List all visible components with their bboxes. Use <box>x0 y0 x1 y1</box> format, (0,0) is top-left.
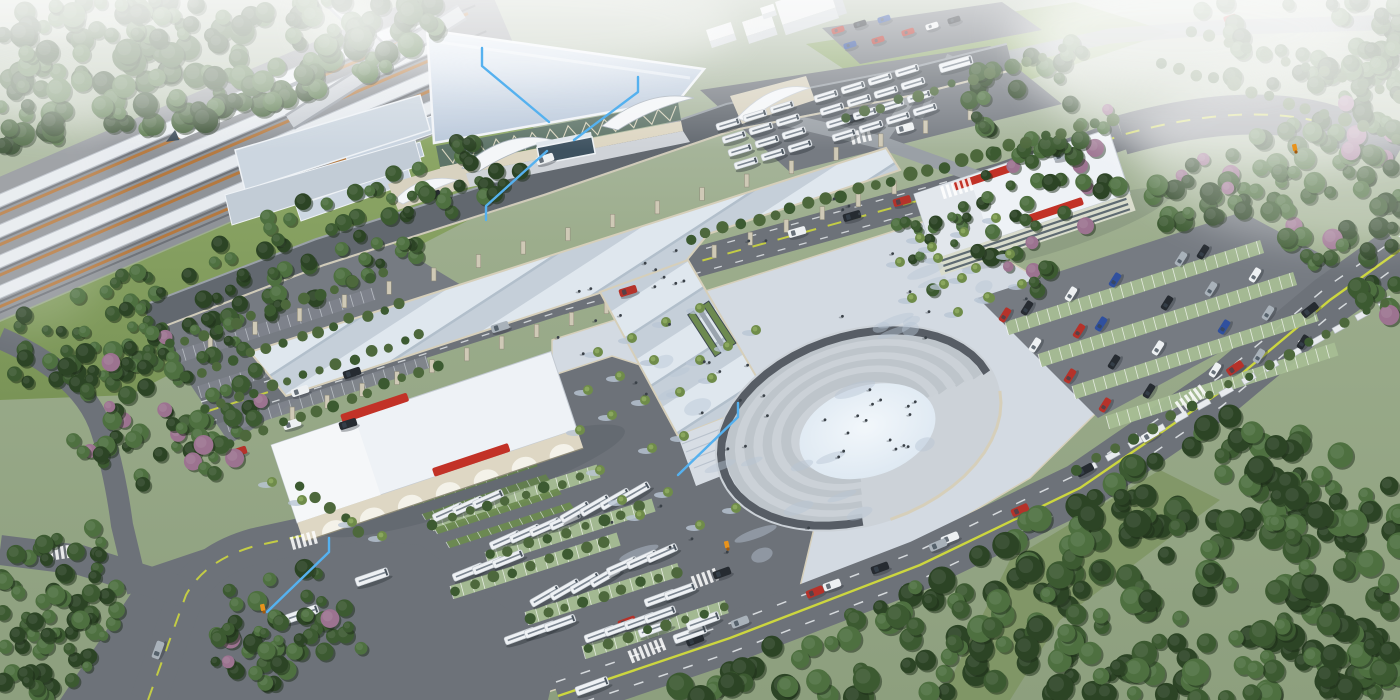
tree-highlight <box>157 288 163 294</box>
hedge-bush <box>871 180 881 190</box>
person <box>891 252 894 255</box>
tree-highlight <box>350 210 359 219</box>
tree-highlight <box>848 612 859 623</box>
tree-highlight <box>1272 490 1281 499</box>
hedge-bush <box>671 567 682 578</box>
hedge-bush <box>312 327 324 339</box>
tree-highlight <box>387 194 393 200</box>
tree-highlight <box>513 164 522 173</box>
tree-highlight <box>65 644 71 650</box>
tree-highlight <box>96 538 102 544</box>
tree-highlight <box>90 572 97 579</box>
hedge-bush <box>735 219 746 230</box>
hedge-bush <box>330 285 339 294</box>
person <box>746 364 749 367</box>
hedge-bush <box>315 366 323 374</box>
hedge-bush <box>267 379 279 391</box>
tree-highlight <box>245 635 256 646</box>
tree-highlight <box>1372 661 1387 676</box>
tree-highlight <box>779 678 791 690</box>
tree-highlight <box>249 593 260 604</box>
hedge-bush <box>279 417 288 426</box>
tree-highlight <box>1184 439 1195 450</box>
hedge-bush <box>365 273 376 284</box>
tree-highlight <box>138 361 146 369</box>
hedge-bush <box>581 542 593 554</box>
tree-highlight <box>479 179 488 188</box>
tree-highlight <box>274 616 283 625</box>
tree-highlight <box>23 677 29 683</box>
tree-highlight <box>211 658 217 664</box>
tree-highlight <box>213 237 222 246</box>
tree-highlight <box>1094 610 1103 619</box>
tree-highlight <box>233 297 242 306</box>
tree-highlight <box>478 190 487 199</box>
hedge-bush <box>700 228 711 239</box>
hedge-bush <box>343 313 354 324</box>
tree-highlight <box>221 385 228 392</box>
tree-highlight <box>1230 632 1239 641</box>
tree-highlight <box>1330 445 1344 459</box>
tree-highlight <box>942 650 951 659</box>
plaza-tree-highlight <box>753 327 758 332</box>
person <box>841 208 844 211</box>
tree-highlight <box>916 252 921 257</box>
tree-highlight <box>1123 589 1138 604</box>
tree-highlight <box>1077 176 1086 185</box>
person <box>848 205 851 208</box>
person <box>842 450 845 453</box>
hedge-bush <box>753 214 765 226</box>
tree-highlight <box>273 234 280 241</box>
person <box>668 323 671 326</box>
tree-highlight <box>803 637 815 649</box>
tree-highlight <box>225 337 231 343</box>
tree-highlight <box>1199 635 1210 646</box>
tree-highlight <box>455 181 462 188</box>
plaza-tree-highlight <box>725 343 730 348</box>
tree-highlight <box>986 672 999 685</box>
tree-highlight <box>983 192 990 199</box>
plaza-tree-highlight <box>677 389 682 394</box>
plaza-tree-highlight <box>597 467 602 472</box>
tree-highlight <box>19 668 28 677</box>
plaza-tree-highlight <box>649 445 654 450</box>
tree-highlight <box>1359 553 1374 568</box>
hedge-bush <box>1380 299 1389 308</box>
tree-highlight <box>202 314 209 321</box>
tree-highlight <box>413 163 421 171</box>
tree-highlight <box>81 385 89 393</box>
plaza-tree-highlight <box>709 375 714 380</box>
person <box>841 315 844 318</box>
hedge-bush <box>562 549 573 560</box>
tree-highlight <box>1007 181 1013 187</box>
person <box>903 444 906 447</box>
tree-highlight <box>1159 548 1168 557</box>
hedge-bush <box>543 534 552 543</box>
tree-highlight <box>721 675 735 689</box>
tree-highlight <box>37 537 47 547</box>
person <box>744 445 747 448</box>
plaza-tree-highlight <box>379 533 384 538</box>
tree-highlight <box>28 614 38 624</box>
tree-highlight <box>372 238 379 245</box>
hedge-bush <box>802 197 814 209</box>
hedge-bush <box>216 398 226 408</box>
tree-highlight <box>1389 278 1398 287</box>
tree-highlight <box>490 164 499 173</box>
tree-highlight <box>1323 647 1337 661</box>
hedge-bush <box>507 569 517 579</box>
tree-highlight <box>1081 644 1094 657</box>
tree-highlight <box>13 587 21 595</box>
tree-highlight <box>95 550 102 557</box>
tree-highlight <box>1243 423 1255 435</box>
tree-highlight <box>1049 676 1064 691</box>
tree-highlight <box>167 419 175 427</box>
hedge-bush <box>427 520 438 531</box>
tree-highlight <box>356 643 363 650</box>
hedge-bush <box>599 591 610 602</box>
pier <box>297 308 302 321</box>
hedge-bush <box>297 331 308 342</box>
tree-highlight <box>733 660 747 674</box>
tree-highlight <box>198 352 205 359</box>
tree-highlight <box>1125 457 1137 469</box>
tree-highlight <box>1140 591 1152 603</box>
hedge-bush <box>413 367 424 378</box>
tree-highlight <box>297 561 308 572</box>
tree-highlight <box>209 468 217 476</box>
tree-highlight <box>971 547 982 558</box>
tree-highlight <box>1304 577 1319 592</box>
tree-highlight <box>1126 513 1141 528</box>
tree-highlight <box>9 368 17 376</box>
tree-highlight <box>925 235 931 241</box>
plaza-tree-highlight <box>577 427 582 432</box>
tree-highlight <box>669 675 684 690</box>
tree-highlight <box>1027 264 1035 272</box>
tree-highlight <box>104 412 115 423</box>
hedge-bush <box>414 329 424 339</box>
tree-highlight <box>1300 561 1309 570</box>
person <box>765 239 768 242</box>
hedge-bush <box>450 587 460 597</box>
tree-highlight <box>83 650 92 659</box>
tree-highlight <box>57 566 67 576</box>
tree-highlight <box>50 373 59 382</box>
tree-highlight <box>924 595 932 603</box>
tree-highlight <box>186 454 196 464</box>
tree-highlight <box>159 349 165 355</box>
hedge-bush <box>544 607 554 617</box>
tree-highlight <box>1088 491 1097 500</box>
station-aerial-render: Aerial architectural rendering of a high… <box>0 0 1400 700</box>
annotation-marker-base <box>1294 150 1297 153</box>
hedge-bush <box>616 510 626 520</box>
hedge-bush <box>197 368 207 378</box>
person <box>644 262 647 265</box>
person <box>869 388 872 391</box>
hedge-bush <box>560 604 568 612</box>
hedge-bush <box>466 506 475 515</box>
tree-highlight <box>1349 644 1363 658</box>
tree-highlight <box>1021 197 1029 205</box>
person <box>589 287 592 290</box>
tree-highlight <box>1382 479 1392 489</box>
tree-highlight <box>1170 520 1179 529</box>
person <box>824 418 827 421</box>
tree-highlight <box>249 364 257 372</box>
tree-highlight <box>1361 244 1370 253</box>
hedge-bush <box>283 377 291 385</box>
tree-highlight <box>159 404 167 412</box>
hedge-bush <box>165 338 175 348</box>
tree-highlight <box>196 292 206 302</box>
tree-highlight <box>1267 582 1280 595</box>
tree-highlight <box>226 286 232 292</box>
hedge-bush <box>1339 318 1349 328</box>
pier <box>566 228 571 241</box>
pier <box>712 245 717 258</box>
tree-highlight <box>1301 250 1309 258</box>
tree-highlight <box>930 217 938 225</box>
tree-highlight <box>1381 644 1392 655</box>
hedge-bush <box>378 268 388 278</box>
tree-highlight <box>1017 638 1031 652</box>
tree-highlight <box>1365 640 1374 649</box>
tree-highlight <box>1094 670 1103 679</box>
tree-highlight <box>272 657 282 667</box>
hedge-bush <box>295 481 304 490</box>
pier <box>748 232 753 245</box>
tree-highlight <box>66 674 74 682</box>
tree-highlight <box>349 185 358 194</box>
pier <box>342 295 347 308</box>
hedge-bush <box>500 496 509 505</box>
tree-highlight <box>1128 688 1136 696</box>
person <box>871 403 874 406</box>
tree-highlight <box>224 585 231 592</box>
hedge-bush <box>281 299 291 309</box>
pier <box>387 281 392 294</box>
tree-highlight <box>856 669 871 684</box>
tree-highlight <box>271 286 281 296</box>
tree-highlight <box>154 448 162 456</box>
tree-highlight <box>1270 517 1278 525</box>
tree-highlight <box>376 259 382 265</box>
tree-highlight <box>1068 496 1082 510</box>
plaza-tree-highlight <box>665 489 670 494</box>
pier <box>499 336 504 349</box>
tree-highlight <box>1059 626 1069 636</box>
tree-highlight <box>261 211 269 219</box>
tree-highlight <box>116 270 124 278</box>
tree-highlight <box>43 611 51 619</box>
hedge-bush <box>324 502 336 514</box>
plaza-tree-highlight <box>619 497 624 502</box>
hedge-bush <box>363 389 372 398</box>
hedge-bush <box>329 322 338 331</box>
tree-highlight <box>1031 221 1037 227</box>
tree-highlight <box>183 269 191 277</box>
hedge-bush <box>1187 401 1198 412</box>
tree-highlight <box>912 221 918 227</box>
plaza-tree-highlight <box>1007 251 1012 256</box>
tree-highlight <box>48 587 59 598</box>
tree-highlight <box>191 326 197 332</box>
hedge-bush <box>231 318 243 330</box>
tree-highlight <box>52 534 59 541</box>
pier <box>521 241 526 254</box>
tree-highlight <box>420 187 430 197</box>
hedge-bush <box>584 644 593 653</box>
tree-highlight <box>1196 417 1210 431</box>
tree-highlight <box>8 547 18 557</box>
hedge-bush <box>603 638 614 649</box>
tree-highlight <box>88 366 95 373</box>
hedge-bush <box>397 373 406 382</box>
hedge-bush <box>350 355 360 365</box>
hedge-bush <box>214 325 223 334</box>
pier <box>534 324 539 337</box>
tree-highlight <box>250 667 258 675</box>
hedge-bush <box>1224 380 1232 388</box>
tree-highlight <box>191 412 202 423</box>
tree-highlight <box>83 662 89 668</box>
person <box>747 240 750 243</box>
tree-highlight <box>224 318 231 325</box>
tree-highlight <box>302 610 309 617</box>
tree-highlight <box>1185 661 1200 676</box>
tree-highlight <box>131 266 140 275</box>
person <box>660 505 663 508</box>
tree-highlight <box>80 327 86 333</box>
hedge-bush <box>1304 337 1313 346</box>
tree-highlight <box>1343 512 1358 527</box>
tree-highlight <box>910 582 918 590</box>
pier <box>290 407 295 420</box>
hedge-bush <box>299 370 308 379</box>
person <box>895 448 898 451</box>
plaza-tree-highlight <box>269 479 274 484</box>
hedge-bush <box>970 149 983 162</box>
tree-highlight <box>1276 620 1285 629</box>
tree-highlight <box>947 636 956 645</box>
tree-highlight <box>317 597 323 603</box>
tree-highlight <box>336 243 344 251</box>
tree-highlight <box>982 171 988 177</box>
tree-highlight <box>1008 161 1015 168</box>
tree-highlight <box>1383 522 1395 534</box>
tree-highlight <box>1286 531 1295 540</box>
tree-highlight <box>1265 662 1277 674</box>
tree-highlight <box>909 255 914 260</box>
hedge-bush <box>394 298 405 309</box>
tree-highlight <box>264 574 272 582</box>
tree-highlight <box>37 595 45 603</box>
tree-highlight <box>247 412 256 421</box>
hedge-bush <box>525 561 535 571</box>
tree-highlight <box>1230 430 1243 443</box>
person <box>909 290 912 293</box>
tree-highlight <box>365 187 371 193</box>
tree-highlight <box>1115 491 1124 500</box>
person <box>726 447 729 450</box>
tree-highlight <box>1202 542 1212 552</box>
hedge-bush <box>681 616 689 624</box>
hedge-bush <box>921 164 933 176</box>
hedge-bush <box>538 482 550 494</box>
annotation-marker-base <box>262 610 265 613</box>
tree-highlight <box>223 657 230 664</box>
tree-highlight <box>128 322 134 328</box>
tree-highlight <box>1068 606 1080 618</box>
tree-highlight <box>57 327 63 333</box>
pier <box>856 194 861 207</box>
tree-highlight <box>139 380 149 390</box>
tree-highlight <box>984 619 996 631</box>
hedge-bush <box>660 620 672 632</box>
hedge-bush <box>955 153 969 167</box>
tree-highlight <box>92 563 99 570</box>
plaza-tree-highlight <box>629 335 634 340</box>
tree-highlight <box>105 402 111 408</box>
pier <box>700 187 705 200</box>
tree-highlight <box>1099 685 1110 696</box>
person <box>594 319 597 322</box>
tree-highlight <box>892 219 899 226</box>
plaza-tree-highlight <box>585 387 590 392</box>
person <box>663 276 666 279</box>
tree-highlight <box>238 269 245 276</box>
tree-highlight <box>84 586 94 596</box>
tree-highlight <box>1279 474 1291 486</box>
tree-highlight <box>78 447 85 454</box>
pier <box>784 219 789 232</box>
hedge-bush <box>1165 410 1176 421</box>
tree-highlight <box>917 652 928 663</box>
tree-highlight <box>951 240 955 244</box>
tree-highlight <box>1381 307 1392 318</box>
tree-highlight <box>995 534 1010 549</box>
tree-highlight <box>1216 467 1226 477</box>
hedge-bush <box>228 355 239 366</box>
pier <box>476 255 481 268</box>
tree-highlight <box>1029 618 1043 632</box>
tree-highlight <box>86 375 94 383</box>
plaza-tree-highlight <box>651 357 656 362</box>
tree-highlight <box>1174 612 1182 620</box>
tree-highlight <box>354 231 361 238</box>
tree-highlight <box>1249 458 1264 473</box>
hedge-bush <box>1363 307 1371 315</box>
person <box>718 370 721 373</box>
tree-highlight <box>137 478 145 486</box>
pier <box>744 174 749 187</box>
person <box>833 197 836 200</box>
hedge-bush <box>180 337 189 346</box>
hedge-bush <box>362 311 373 322</box>
tree-highlight <box>1286 516 1298 528</box>
plaza-tree-highlight <box>961 229 966 234</box>
tree-highlight <box>258 243 268 253</box>
hedge-bush <box>502 546 512 556</box>
tree-highlight <box>99 632 105 638</box>
tree-highlight <box>233 377 243 387</box>
hedge-bush <box>198 330 209 341</box>
